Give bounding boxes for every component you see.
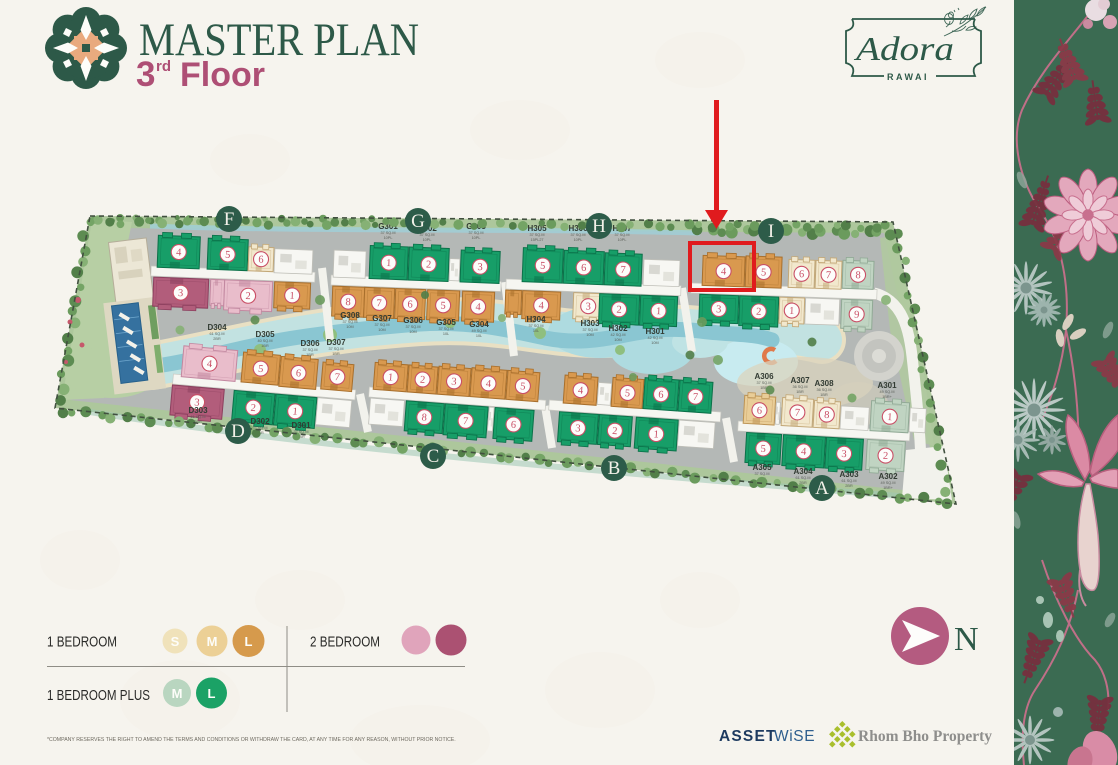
svg-text:61 SQ.M: 61 SQ.M xyxy=(796,476,811,480)
svg-text:rd: rd xyxy=(156,58,171,75)
svg-text:L: L xyxy=(245,634,253,649)
svg-text:Floor: Floor xyxy=(180,56,265,94)
svg-text:6: 6 xyxy=(799,269,805,280)
svg-text:15PL27: 15PL27 xyxy=(530,238,543,242)
svg-text:3: 3 xyxy=(841,449,847,460)
svg-text:7: 7 xyxy=(692,392,698,403)
svg-text:A301: A301 xyxy=(877,381,897,390)
svg-text:2: 2 xyxy=(612,426,618,437)
svg-text:D304: D304 xyxy=(207,323,227,332)
svg-text:F: F xyxy=(224,209,235,230)
svg-text:5: 5 xyxy=(761,267,767,278)
svg-text:61 SQ.M: 61 SQ.M xyxy=(191,415,206,419)
svg-text:H303: H303 xyxy=(580,319,600,328)
svg-text:A306: A306 xyxy=(754,372,774,381)
svg-text:37 SQ.M: 37 SQ.M xyxy=(343,320,358,324)
svg-text:2: 2 xyxy=(250,403,256,414)
svg-text:10PL: 10PL xyxy=(574,238,583,242)
svg-text:H304: H304 xyxy=(526,315,546,324)
svg-text:L: L xyxy=(208,686,216,701)
svg-text:37 SQ.M: 37 SQ.M xyxy=(469,231,484,235)
svg-text:2 BEDROOM: 2 BEDROOM xyxy=(310,635,380,651)
svg-text:6: 6 xyxy=(756,405,762,416)
svg-text:1: 1 xyxy=(656,306,662,317)
svg-text:A304: A304 xyxy=(793,467,813,476)
svg-text:10M: 10M xyxy=(378,328,385,332)
svg-text:G307: G307 xyxy=(372,314,392,323)
svg-text:D302: D302 xyxy=(250,417,270,426)
svg-text:3: 3 xyxy=(575,423,581,434)
svg-text:1BR: 1BR xyxy=(332,352,340,356)
svg-text:A302: A302 xyxy=(878,472,898,481)
svg-text:5: 5 xyxy=(760,444,766,455)
svg-text:1 BEDROOM PLUS: 1 BEDROOM PLUS xyxy=(47,688,150,704)
svg-text:8: 8 xyxy=(345,297,351,308)
svg-text:37 SQ.M: 37 SQ.M xyxy=(529,324,544,328)
svg-text:G: G xyxy=(411,211,425,232)
svg-text:37 SQ.M: 37 SQ.M xyxy=(420,233,435,237)
svg-text:10L: 10L xyxy=(533,329,539,333)
svg-text:1: 1 xyxy=(386,258,392,269)
svg-text:H305: H305 xyxy=(527,224,547,233)
svg-text:D307: D307 xyxy=(326,338,346,347)
svg-text:37 SQ.M: 37 SQ.M xyxy=(329,347,344,351)
svg-text:10M: 10M xyxy=(346,325,353,329)
svg-text:42 SQ.M: 42 SQ.M xyxy=(611,333,626,337)
svg-text:1BR: 1BR xyxy=(796,390,804,394)
svg-text:3: 3 xyxy=(716,304,722,315)
svg-text:8: 8 xyxy=(824,410,830,421)
svg-text:7: 7 xyxy=(334,372,340,383)
svg-text:37 SQ.M: 37 SQ.M xyxy=(439,327,454,331)
svg-text:7: 7 xyxy=(794,408,800,419)
svg-text:40 SQ.M: 40 SQ.M xyxy=(258,339,273,343)
svg-text:6: 6 xyxy=(407,299,413,310)
svg-text:7: 7 xyxy=(620,265,626,276)
svg-text:G305: G305 xyxy=(436,318,456,327)
svg-text:C: C xyxy=(427,446,440,467)
svg-text:1: 1 xyxy=(653,429,659,440)
svg-text:3: 3 xyxy=(451,377,457,388)
svg-text:1BR: 1BR xyxy=(306,353,314,357)
svg-text:M: M xyxy=(207,634,218,649)
svg-text:10M: 10M xyxy=(409,330,416,334)
svg-text:1BR+: 1BR+ xyxy=(883,486,893,490)
svg-text:2: 2 xyxy=(756,307,762,318)
svg-text:1: 1 xyxy=(292,406,298,417)
svg-text:A: A xyxy=(815,478,829,499)
svg-text:7: 7 xyxy=(826,270,832,281)
svg-text:61 SQ.M: 61 SQ.M xyxy=(842,479,857,483)
svg-text:10L: 10L xyxy=(443,332,449,336)
svg-text:S: S xyxy=(171,634,180,649)
svg-text:2: 2 xyxy=(426,260,432,271)
svg-text:A305: A305 xyxy=(752,463,772,472)
svg-text:6: 6 xyxy=(581,263,587,274)
svg-text:2: 2 xyxy=(245,291,251,302)
svg-text:6: 6 xyxy=(510,420,516,431)
svg-text:36 SQ.M: 36 SQ.M xyxy=(817,388,832,392)
svg-text:1 BEDROOM: 1 BEDROOM xyxy=(47,635,117,651)
svg-text:6: 6 xyxy=(258,255,264,266)
svg-text:N: N xyxy=(954,621,979,658)
svg-text:A308: A308 xyxy=(814,379,834,388)
svg-text:6: 6 xyxy=(658,390,664,401)
svg-text:5: 5 xyxy=(225,250,231,261)
svg-text:D303: D303 xyxy=(188,406,208,415)
svg-text:7: 7 xyxy=(376,298,382,309)
svg-text:42 SQ.M: 42 SQ.M xyxy=(648,336,663,340)
svg-text:37 SQ.M: 37 SQ.M xyxy=(406,325,421,329)
svg-text:WiSE: WiSE xyxy=(774,728,815,745)
svg-text:D: D xyxy=(231,421,245,442)
svg-text:3: 3 xyxy=(585,301,591,312)
svg-text:G304: G304 xyxy=(469,320,489,329)
svg-text:2BR: 2BR xyxy=(213,337,221,341)
svg-text:Rhom Bho Property: Rhom Bho Property xyxy=(858,728,992,745)
svg-text:1: 1 xyxy=(289,291,295,302)
svg-text:37 SQ.M: 37 SQ.M xyxy=(755,472,770,476)
svg-text:5: 5 xyxy=(258,364,264,375)
svg-text:5: 5 xyxy=(440,301,446,312)
svg-text:3: 3 xyxy=(136,55,155,94)
svg-text:49 SQ.M: 49 SQ.M xyxy=(472,329,487,333)
svg-text:H302: H302 xyxy=(608,324,628,333)
svg-text:D305: D305 xyxy=(255,330,275,339)
svg-text:37 SQ.M: 37 SQ.M xyxy=(381,231,396,235)
svg-text:1: 1 xyxy=(388,372,394,383)
svg-text:B: B xyxy=(608,458,621,479)
svg-text:2: 2 xyxy=(419,375,425,386)
svg-text:5: 5 xyxy=(520,381,526,392)
svg-text:8: 8 xyxy=(421,412,427,423)
svg-text:1BR: 1BR xyxy=(261,344,269,348)
svg-text:I: I xyxy=(768,221,774,242)
svg-text:3: 3 xyxy=(477,262,483,273)
svg-text:10PL: 10PL xyxy=(472,236,481,240)
svg-text:10L: 10L xyxy=(476,334,482,338)
svg-text:10PL: 10PL xyxy=(618,238,627,242)
svg-text:M: M xyxy=(172,686,183,701)
svg-text:1: 1 xyxy=(887,412,893,423)
svg-text:37 SQ.M: 37 SQ.M xyxy=(757,381,772,385)
svg-text:Adora: Adora xyxy=(854,31,954,68)
svg-text:6: 6 xyxy=(295,368,301,379)
svg-text:*COMPANY RESERVES THE RIGHT TO: *COMPANY RESERVES THE RIGHT TO AMEND THE… xyxy=(47,737,456,743)
svg-text:G306: G306 xyxy=(403,316,423,325)
svg-text:RAWAI: RAWAI xyxy=(887,72,929,82)
svg-text:37 SQ.M: 37 SQ.M xyxy=(583,328,598,332)
svg-text:7: 7 xyxy=(463,416,469,427)
svg-text:10M: 10M xyxy=(614,338,621,342)
svg-text:5: 5 xyxy=(624,388,630,399)
svg-text:2BR: 2BR xyxy=(845,484,853,488)
svg-text:3: 3 xyxy=(178,288,184,299)
svg-text:H301: H301 xyxy=(645,327,665,336)
svg-text:37 SQ.M: 37 SQ.M xyxy=(303,348,318,352)
svg-text:49 SQ.M: 49 SQ.M xyxy=(881,481,896,485)
svg-text:37 SQ.M: 37 SQ.M xyxy=(530,233,545,237)
svg-text:37 SQ.M: 37 SQ.M xyxy=(571,233,586,237)
svg-text:8: 8 xyxy=(855,270,861,281)
svg-text:10PL: 10PL xyxy=(384,236,393,240)
svg-text:37 SQ.M: 37 SQ.M xyxy=(615,233,630,237)
svg-text:1BR+: 1BR+ xyxy=(882,395,892,399)
svg-text:2: 2 xyxy=(883,451,889,462)
svg-text:9: 9 xyxy=(854,310,860,321)
svg-text:36 SQ.M: 36 SQ.M xyxy=(793,385,808,389)
svg-text:5: 5 xyxy=(540,261,546,272)
svg-text:A307: A307 xyxy=(790,376,810,385)
svg-text:H: H xyxy=(592,216,606,237)
svg-text:D306: D306 xyxy=(300,339,320,348)
svg-text:D301: D301 xyxy=(291,421,311,430)
svg-text:ASSET: ASSET xyxy=(719,728,777,745)
svg-text:61 SQ.M: 61 SQ.M xyxy=(210,332,225,336)
svg-text:10M: 10M xyxy=(586,333,593,337)
svg-text:1BR: 1BR xyxy=(820,393,828,397)
svg-text:A303: A303 xyxy=(839,470,859,479)
svg-text:1: 1 xyxy=(789,306,795,317)
svg-text:37 SQ.M: 37 SQ.M xyxy=(375,323,390,327)
svg-text:G308: G308 xyxy=(340,311,360,320)
svg-text:49 SQ.M: 49 SQ.M xyxy=(880,390,895,394)
svg-text:10PL: 10PL xyxy=(423,238,432,242)
svg-text:10M: 10M xyxy=(651,341,658,345)
svg-text:2: 2 xyxy=(616,305,622,316)
